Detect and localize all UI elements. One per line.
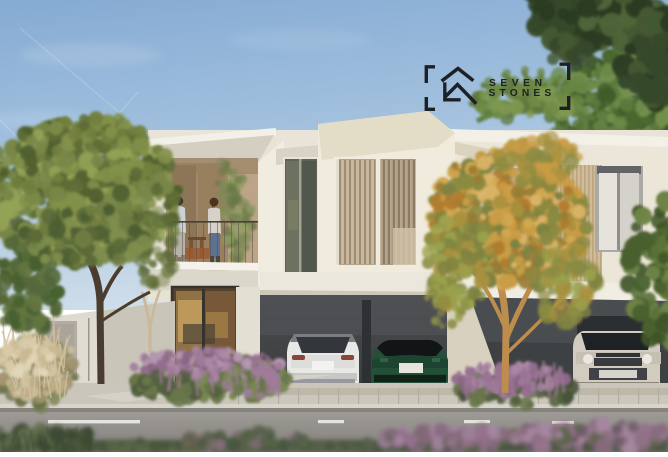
svg-text:STONES: STONES (489, 88, 556, 99)
